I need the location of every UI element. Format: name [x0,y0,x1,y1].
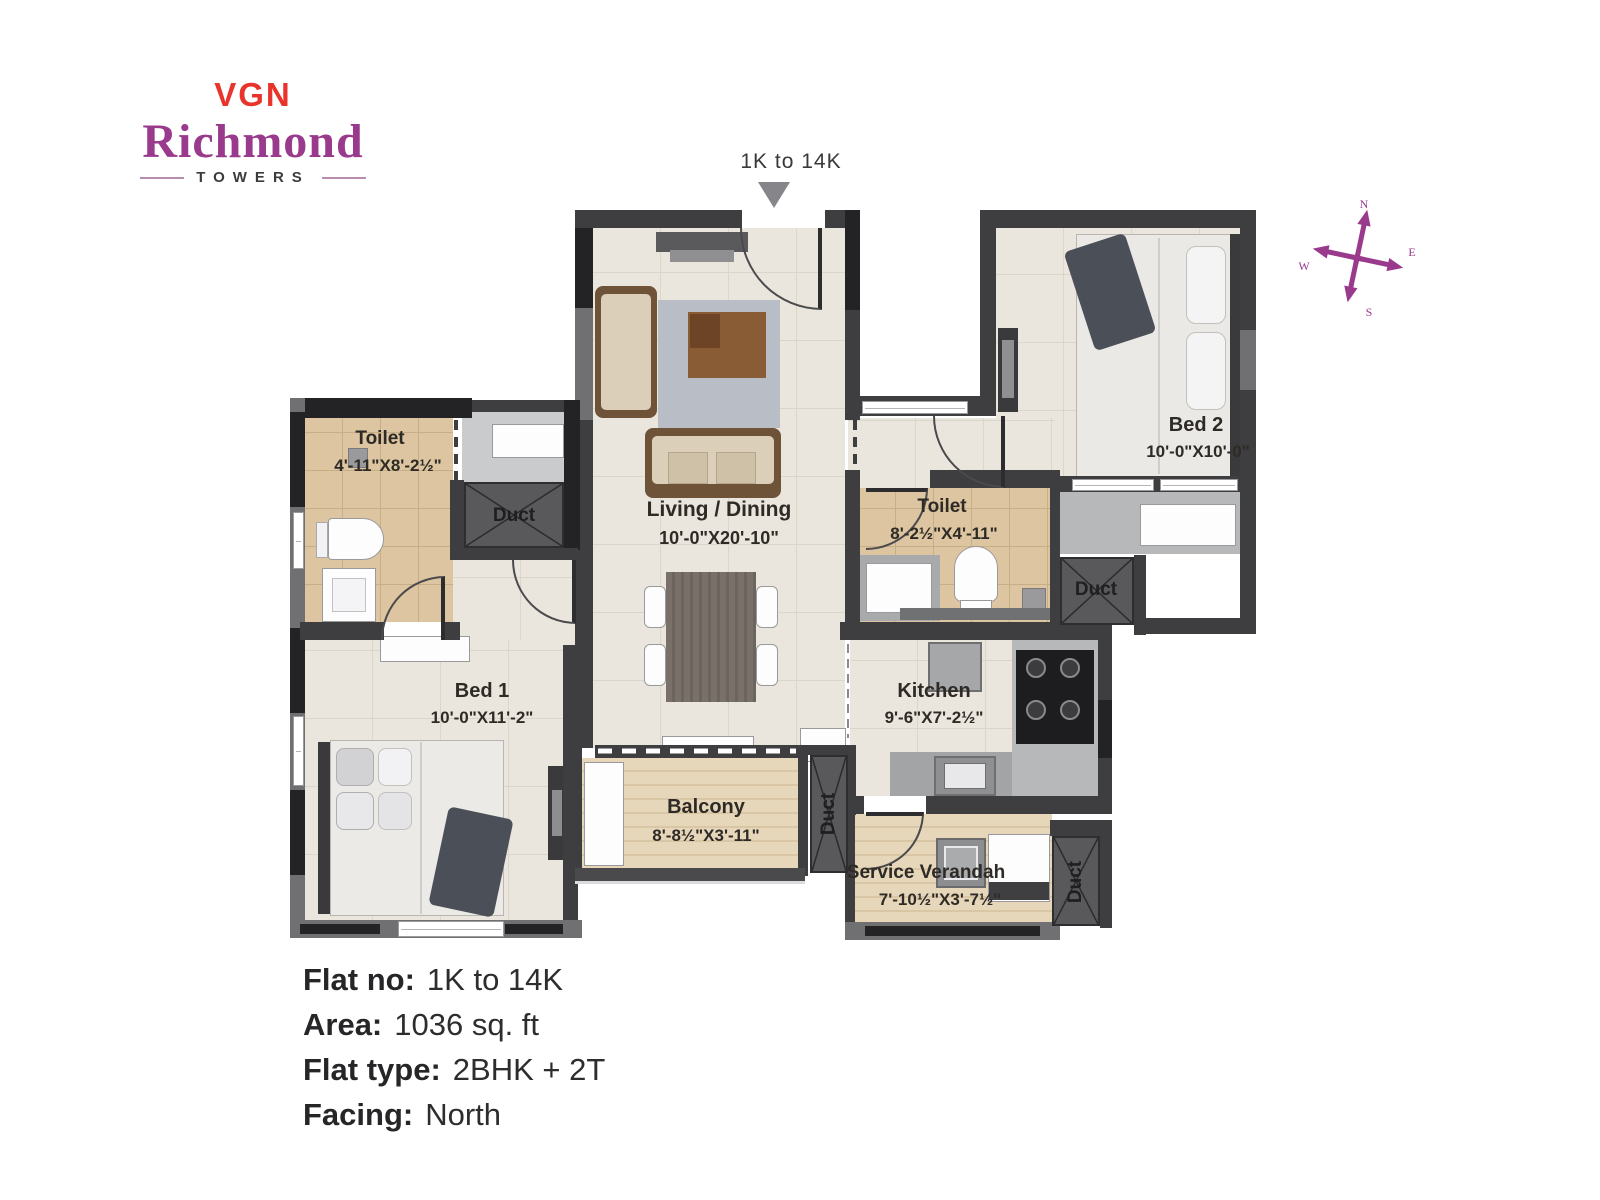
duct-label: Duct [1075,579,1117,601]
plan-overlay [0,0,1600,1200]
room-dims-service-verandah: 7'-10½"X3'-7½" [879,890,1002,910]
flat-type-label: Flat type: [303,1052,441,1087]
flat-no-value: 1K to 14K [427,962,563,997]
room-dims-toilet1: 4'-11"X8'-2½" [334,456,441,476]
room-label-toilet1: Toilet [355,428,404,450]
page: VGN Richmond TOWERS 1K to 14K N E W S [0,0,1600,1200]
room-label-living: Living / Dining [647,498,792,522]
facing-value: North [425,1097,501,1132]
duct-label: Duct [1065,861,1087,903]
room-dims-bed2: 10'-0"X10'-0" [1146,442,1250,462]
duct-label: Duct [493,505,535,527]
room-label-bed2: Bed 2 [1169,414,1223,437]
flat-type-value: 2BHK + 2T [453,1052,606,1087]
room-dims-toilet2: 8'-2½"X4'-11" [890,524,997,544]
flat-no-row: Flat no:1K to 14K [303,962,563,998]
area-row: Area:1036 sq. ft [303,1007,539,1043]
room-label-toilet2: Toilet [917,496,966,518]
facing-label: Facing: [303,1097,413,1132]
room-label-bed1: Bed 1 [455,680,509,703]
area-value: 1036 sq. ft [394,1007,539,1042]
room-label-balcony: Balcony [667,796,745,819]
room-dims-kitchen: 9'-6"X7'-2½" [885,708,984,728]
room-dims-balcony: 8'-8½"X3'-11" [652,826,759,846]
flat-no-label: Flat no: [303,962,415,997]
room-dims-bed1: 10'-0"X11'-2" [431,708,534,728]
room-dims-living: 10'-0"X20'-10" [659,528,779,549]
duct-label: Duct [818,793,840,835]
flat-type-row: Flat type:2BHK + 2T [303,1052,605,1088]
facing-row: Facing:North [303,1097,501,1133]
room-label-service-verandah: Service Verandah [847,862,1005,884]
area-label: Area: [303,1007,382,1042]
room-label-kitchen: Kitchen [897,680,970,703]
